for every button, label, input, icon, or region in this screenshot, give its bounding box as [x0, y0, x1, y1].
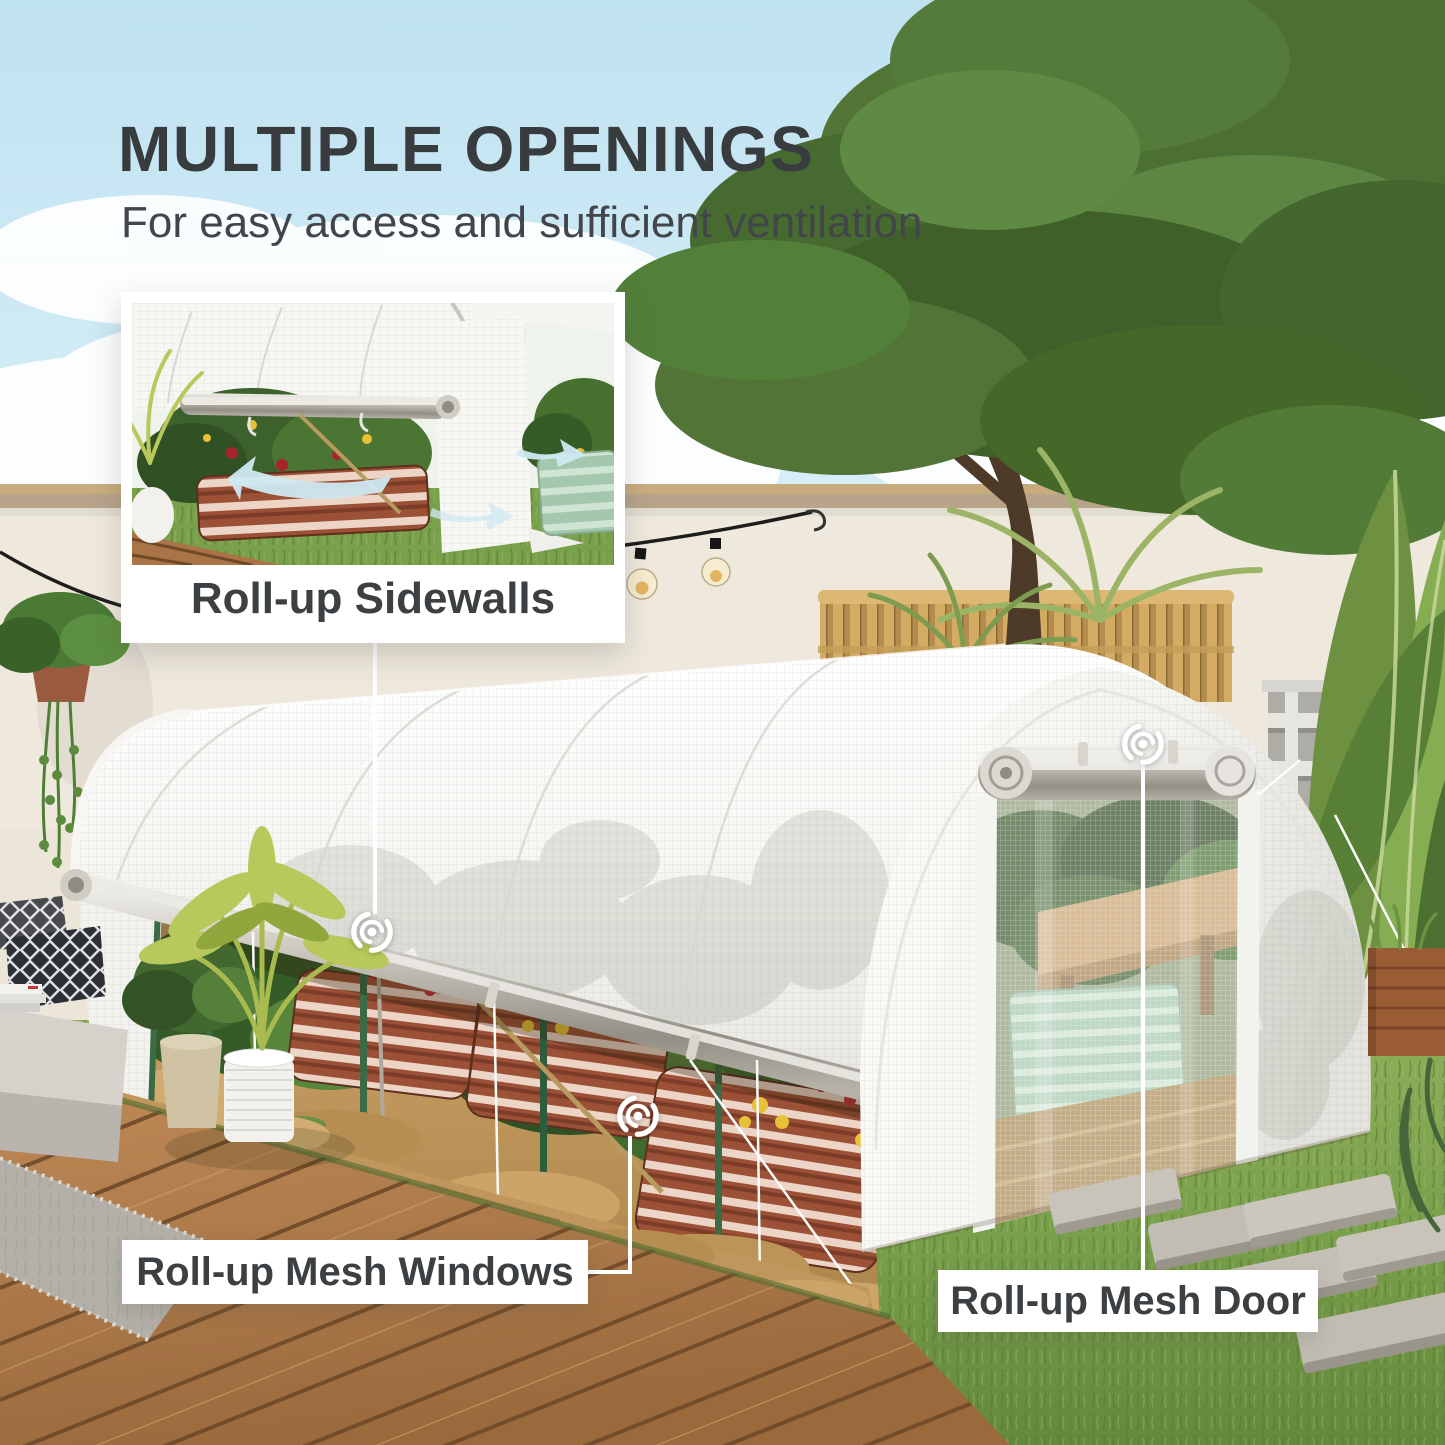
connector-windows-vertical: [628, 1136, 632, 1274]
page-subtitle: For easy access and sufficient ventilati…: [121, 198, 922, 248]
sidewalls-inset-card: Roll-up Sidewalls: [121, 292, 625, 643]
focus-target-icon: [349, 909, 395, 955]
focus-target-icon: [1120, 721, 1166, 767]
rolled-door-bar: [978, 740, 1256, 800]
mesh-door-label: Roll-up Mesh Door: [938, 1270, 1318, 1332]
connector-windows-horizontal: [588, 1270, 632, 1274]
focus-target-icon: [615, 1093, 661, 1139]
page-title: MULTIPLE OPENINGS: [118, 112, 814, 186]
product-feature-image: MULTIPLE OPENINGS For easy access and su…: [0, 0, 1445, 1445]
mesh-windows-label: Roll-up Mesh Windows: [122, 1240, 588, 1304]
connector-sidewalls: [373, 640, 377, 914]
connector-door: [1141, 764, 1145, 1272]
sidewalls-inset-photo: [132, 303, 614, 565]
sidewalls-inset-illustration: [132, 303, 614, 565]
sidewalls-label: Roll-up Sidewalls: [132, 565, 614, 632]
